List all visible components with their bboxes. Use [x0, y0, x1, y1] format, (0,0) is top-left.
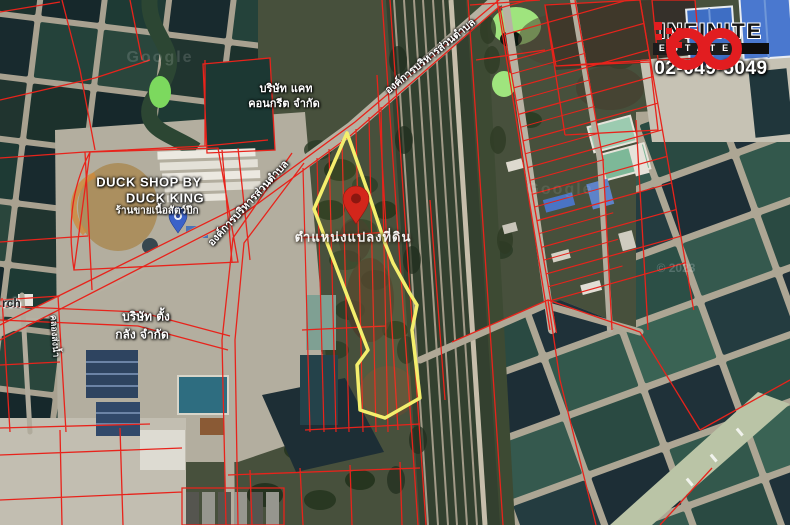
- company-south-label-line2: กลัง จำกัด: [115, 326, 168, 345]
- duck-shop-subtitle: ร้านขายเนื้อสัตว์ปีก: [115, 204, 198, 219]
- infinity-logo-icon: [640, 20, 764, 74]
- company-concrete-label-line2: คอนกรีต จำกัด: [248, 94, 319, 112]
- canal-label: คลองส่งน้ำ: [47, 314, 64, 357]
- duck-shop-label-line1: DUCK SHOP BY: [96, 175, 201, 190]
- plot-position-label: ตำแหน่งแปลงที่ดิน: [295, 227, 412, 248]
- agency-logo: INFINITE ESTATE 02-049-5049: [640, 20, 782, 80]
- company-south-label-line1: บริษัท ตั้ง: [122, 308, 170, 327]
- google-watermark: Google: [126, 49, 193, 67]
- satellite-map-image: DUCK SHOP BY DUCK KING ร้านขายเนื้อสัตว์…: [0, 0, 790, 525]
- copyright-watermark: © 2023: [657, 261, 696, 275]
- church-label-partial: rch: [2, 296, 21, 310]
- google-watermark-2: Google: [526, 181, 593, 199]
